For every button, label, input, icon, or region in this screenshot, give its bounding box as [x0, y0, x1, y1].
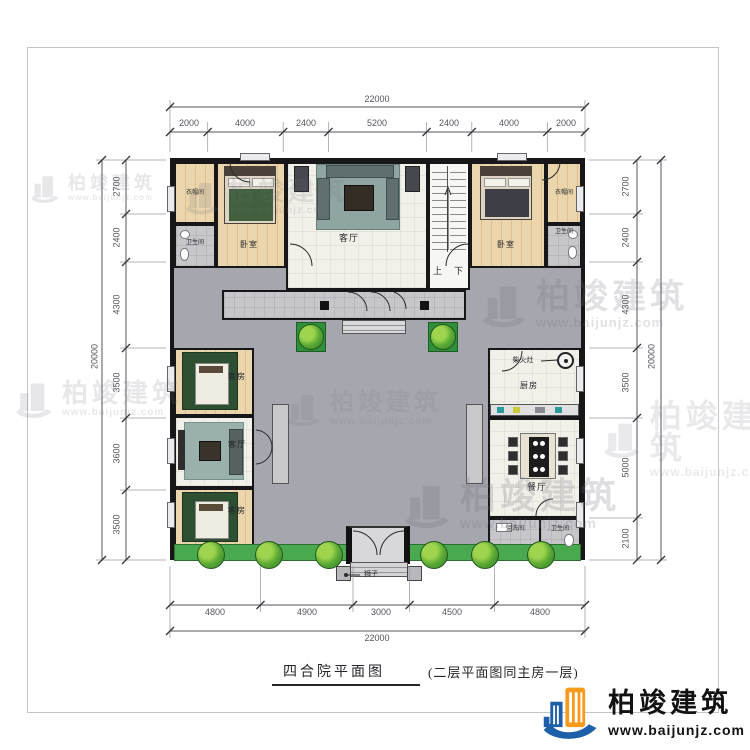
toilet	[568, 246, 577, 259]
stair-label-down: 下	[453, 267, 465, 276]
dim-left-seg: 2400	[113, 216, 122, 260]
toilet	[180, 248, 189, 261]
room-label-west-living: 客厅	[219, 441, 255, 449]
room-label-closet-right: 衣帽间	[546, 190, 582, 196]
dim-left-seg: 4300	[113, 283, 122, 327]
courtyard-screen-left	[272, 404, 289, 484]
dim-bottom-seg: 3000	[359, 608, 403, 617]
sofa-set	[316, 164, 400, 230]
tree-planter-right	[428, 322, 458, 352]
drawing-title: 四合院平面图	[283, 661, 385, 681]
lion-statue-right	[407, 566, 422, 581]
bed	[182, 492, 238, 542]
dim-top-seg: 2400	[427, 119, 471, 128]
bush-icon	[197, 541, 225, 569]
dim-left-seg: 2700	[113, 165, 122, 209]
chair	[558, 437, 568, 447]
room-label-kitchen: 厨房	[511, 382, 547, 390]
window	[497, 153, 527, 161]
room-label-bath-right: 卫生间	[546, 229, 582, 235]
window	[167, 502, 175, 528]
dim-right-total: 20000	[648, 335, 657, 379]
room-label-closet-left: 衣帽间	[176, 190, 214, 196]
chair	[508, 437, 518, 447]
dim-right-seg: 2400	[622, 216, 631, 260]
window	[576, 502, 584, 528]
dim-top-seg: 2400	[284, 119, 328, 128]
title-underline	[272, 684, 420, 686]
dim-right-seg: 5000	[622, 446, 631, 490]
tv-cabinet	[178, 430, 185, 470]
stair-stringer	[447, 166, 450, 252]
callout-lion: 狮子	[361, 571, 381, 578]
room-label-bath-south: 卫生间	[542, 526, 578, 532]
callout-wood-stove: 柴火灶	[506, 357, 540, 364]
dim-bottom-seg: 4800	[193, 608, 237, 617]
window	[167, 186, 175, 212]
window	[167, 438, 175, 464]
bed	[182, 352, 238, 410]
lion-statue-left	[336, 566, 351, 581]
room-label-bedroom-right: 卧室	[488, 241, 524, 249]
bush-icon	[471, 541, 499, 569]
courtyard-screen-right	[466, 404, 483, 484]
dim-bottom-total: 22000	[355, 634, 399, 643]
dim-top-seg: 4000	[487, 119, 531, 128]
dim-top-seg: 2000	[167, 119, 211, 128]
bed	[224, 166, 276, 224]
stair-label-up: 上	[432, 267, 444, 276]
dining-table	[520, 433, 556, 479]
dim-left-seg: 3500	[113, 503, 122, 547]
porch	[222, 290, 466, 320]
dim-bottom-seg: 4800	[518, 608, 562, 617]
dim-right-seg: 2700	[622, 165, 631, 209]
dim-top-seg: 2000	[544, 119, 588, 128]
bush-icon	[315, 541, 343, 569]
cabinet	[405, 166, 420, 192]
toilet	[564, 534, 574, 547]
window	[576, 438, 584, 464]
bed	[480, 166, 532, 220]
bush-icon	[420, 541, 448, 569]
gate	[346, 526, 410, 564]
dim-right-seg: 4300	[622, 283, 631, 327]
dim-right-seg: 2100	[622, 517, 631, 561]
chair	[508, 465, 518, 475]
brand-name: 柏竣建筑	[608, 690, 745, 717]
floorplan-page: 衣帽间 卫生间 卧室 客厅 上 下 卧室 衣帽间 卫生间 客房 客厅 客房 厨房…	[0, 0, 750, 750]
bush-icon	[255, 541, 283, 569]
wood-stove	[557, 352, 574, 369]
dim-left-seg: 3500	[113, 361, 122, 405]
porch-column-left	[320, 301, 329, 310]
chair	[558, 465, 568, 475]
tree-icon	[430, 324, 456, 350]
chair	[558, 451, 568, 461]
dim-bottom-seg: 4900	[285, 608, 329, 617]
window	[240, 153, 270, 161]
dim-left-total: 20000	[91, 335, 100, 379]
window	[167, 366, 175, 392]
window	[576, 366, 584, 392]
entrance-steps	[342, 320, 406, 334]
room-label-guest-1: 客房	[219, 373, 255, 381]
dim-right-seg: 3500	[622, 361, 631, 405]
brand-logo: 柏竣建筑 www.baijunjz.com	[540, 678, 745, 748]
cabinet	[294, 166, 309, 192]
room-label-washroom: 盥洗间	[494, 526, 536, 532]
room-label-bedroom-left: 卧室	[231, 241, 267, 249]
room-label-main-hall: 客厅	[328, 234, 370, 243]
sink	[180, 230, 190, 239]
dim-top-total: 22000	[355, 95, 399, 104]
kitchen-counter	[490, 404, 579, 416]
dim-left-seg: 3600	[113, 432, 122, 476]
dim-top-seg: 5200	[355, 119, 399, 128]
brand-url: www.baijunjz.com	[608, 723, 745, 737]
brand-logo-icon	[540, 682, 600, 744]
tree-icon	[298, 324, 324, 350]
room-label-guest-2: 客房	[219, 507, 255, 515]
dim-top-seg: 4000	[223, 119, 267, 128]
sofa-set	[184, 422, 244, 480]
tree-planter-left	[296, 322, 326, 352]
chair	[508, 451, 518, 461]
room-label-dining: 餐厅	[517, 483, 557, 492]
bush-icon	[527, 541, 555, 569]
dim-bottom-seg: 4500	[430, 608, 474, 617]
room-label-bath-left: 卫生间	[176, 240, 214, 246]
porch-column-right	[420, 301, 429, 310]
